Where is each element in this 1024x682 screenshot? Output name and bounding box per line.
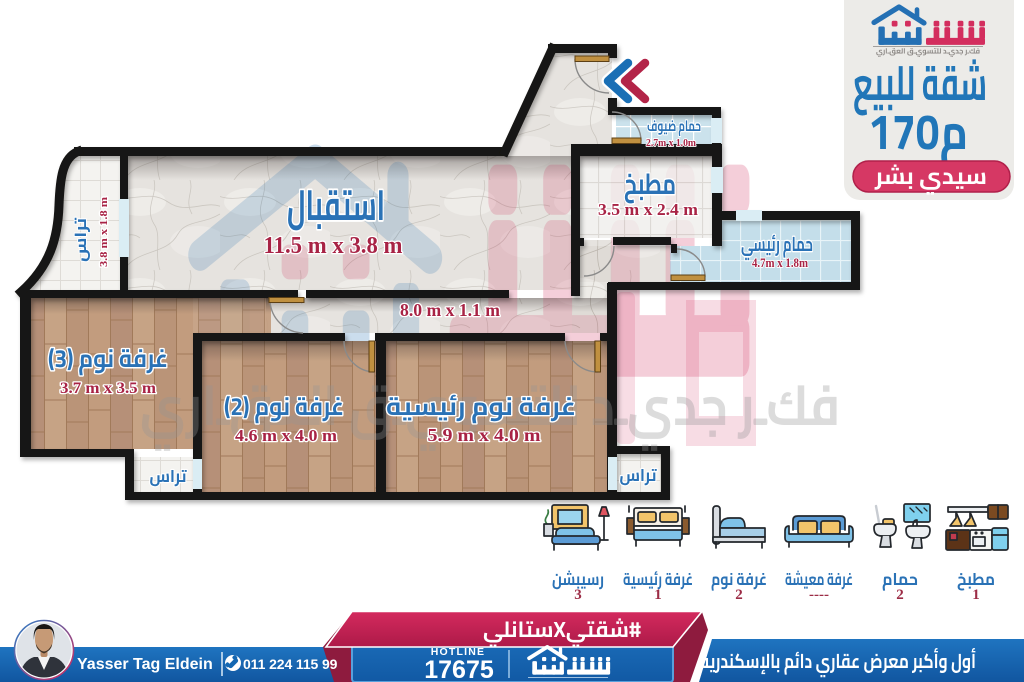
svg-text:011 224 115 99: 011 224 115 99 bbox=[243, 656, 338, 672]
svg-text:1: 1 bbox=[654, 587, 662, 603]
svg-text:4.7m x 1.8m: 4.7m x 1.8m bbox=[752, 255, 808, 270]
svg-text:3: 3 bbox=[574, 587, 582, 603]
svg-text:3.7 m x 3.5 m: 3.7 m x 3.5 m bbox=[60, 380, 156, 397]
svg-text:Yasser Tag Eldein: Yasser Tag Eldein bbox=[77, 656, 213, 673]
svg-text:3.8 m x 1.8 m: 3.8 m x 1.8 m bbox=[98, 197, 110, 267]
svg-text:8.0 m x 1.1 m: 8.0 m x 1.1 m bbox=[400, 300, 500, 320]
svg-text:2: 2 bbox=[735, 587, 743, 603]
svg-text:3.5 m x 2.4 m: 3.5 m x 2.4 m bbox=[598, 200, 698, 219]
svg-text:17675: 17675 bbox=[424, 656, 494, 682]
svg-text:2: 2 bbox=[896, 587, 904, 603]
svg-text:----: ---- bbox=[809, 587, 829, 603]
svg-text:11.5 m x 3.8 m: 11.5 m x 3.8 m bbox=[264, 233, 403, 259]
svg-text:5.9 m x 4.0 m: 5.9 m x 4.0 m bbox=[428, 425, 541, 445]
svg-text:4.6 m x 4.0 m: 4.6 m x 4.0 m bbox=[235, 426, 337, 445]
svg-text:2.7m x 1.0m: 2.7m x 1.0m bbox=[646, 137, 696, 149]
svg-text:1: 1 bbox=[972, 587, 980, 603]
